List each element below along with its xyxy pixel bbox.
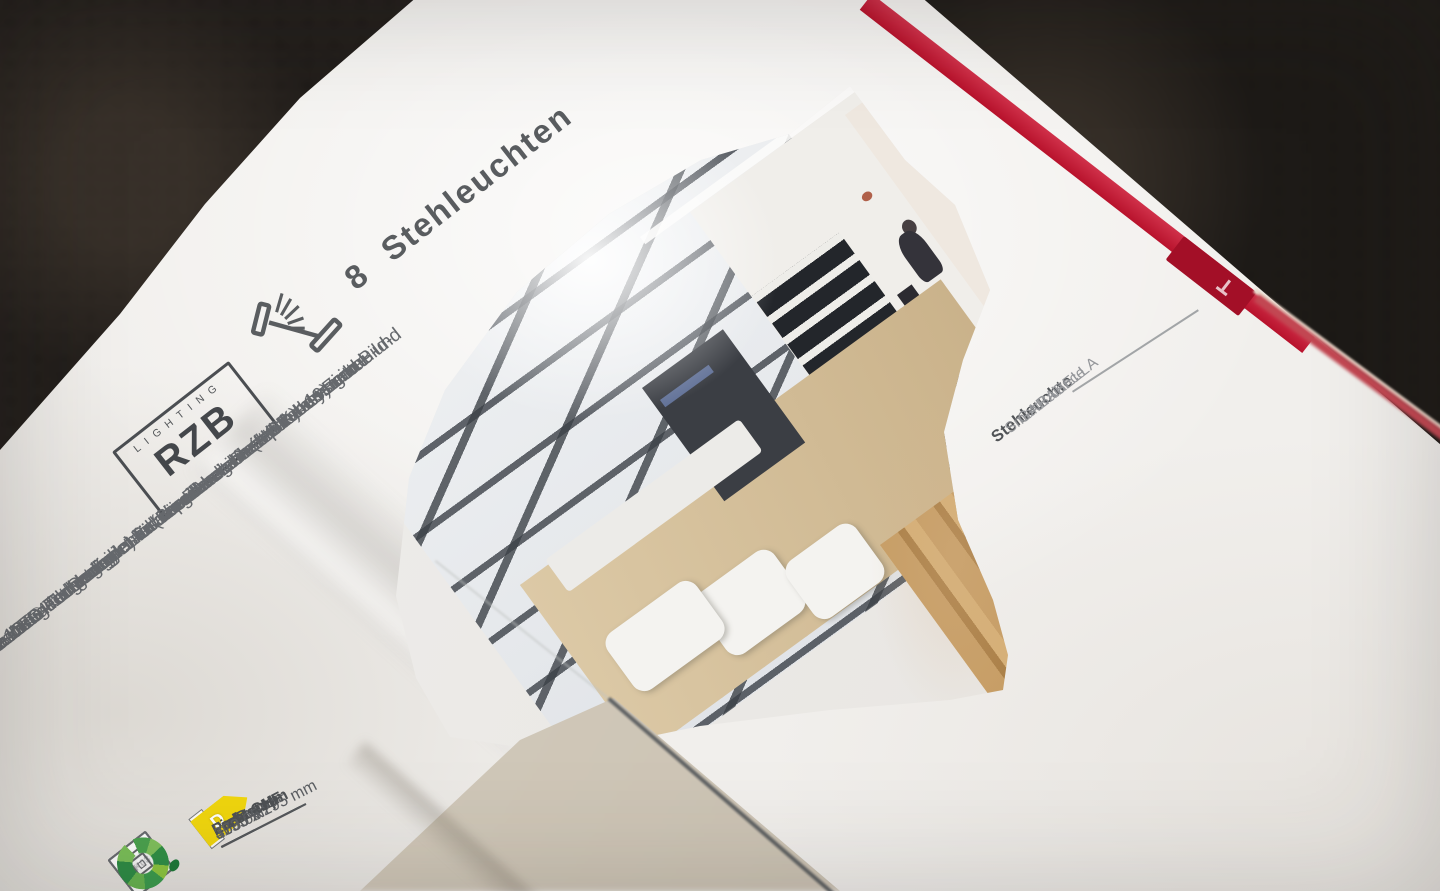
chapter-number: 8 — [337, 255, 376, 297]
catalog-photo: RZB LIGHTING it progressiver LED-Technol… — [0, 0, 1440, 891]
